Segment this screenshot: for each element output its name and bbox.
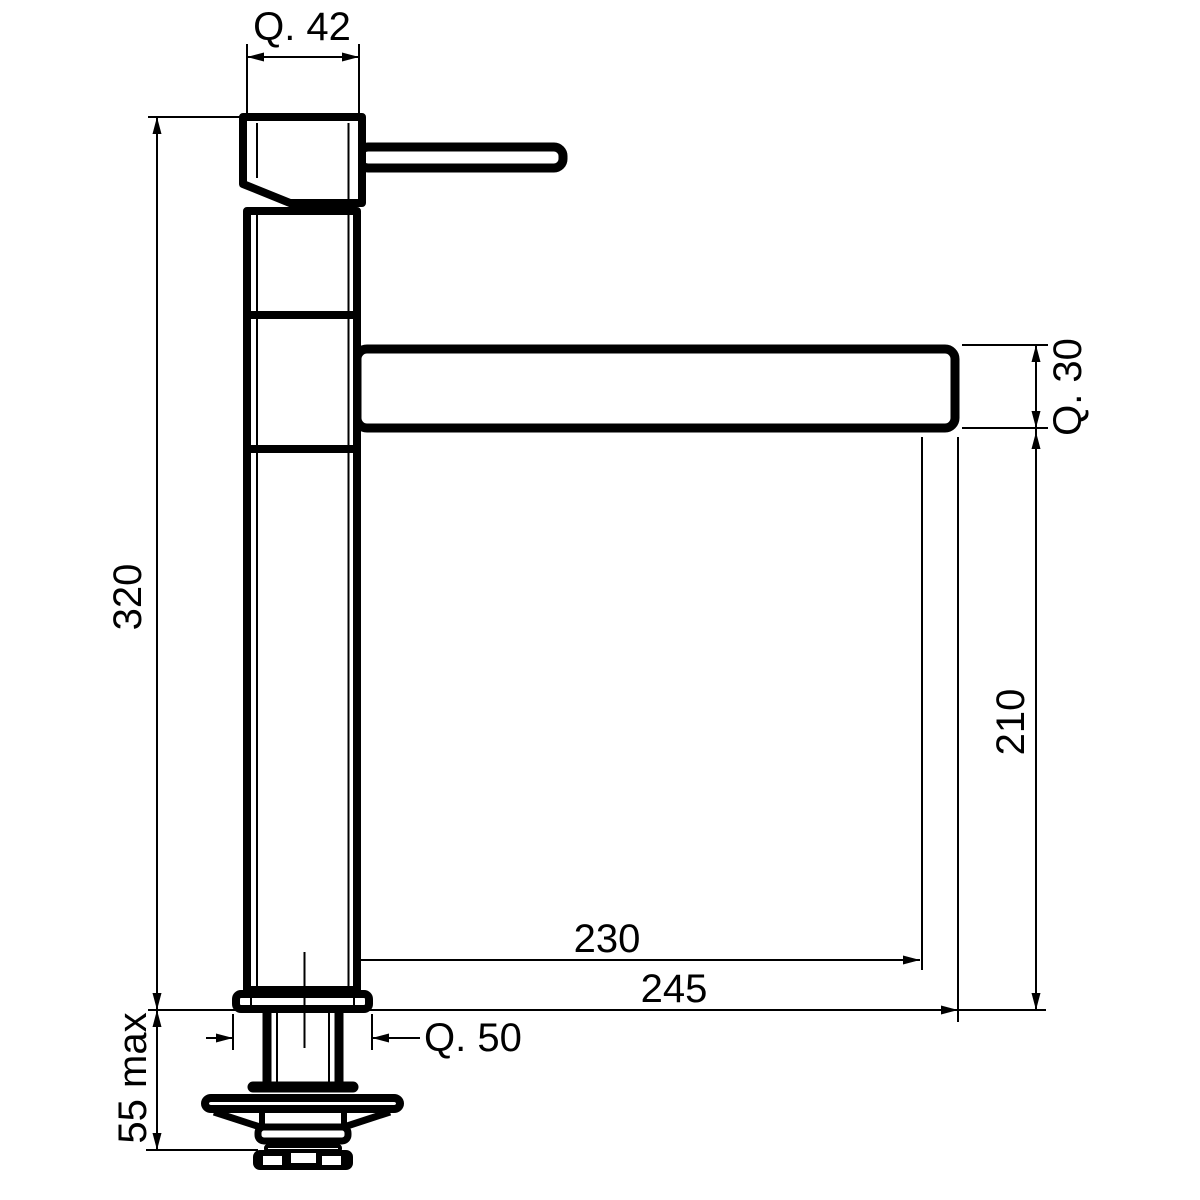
dim-label-head-width: Q. 42 xyxy=(253,5,351,49)
escutcheon-cone-right xyxy=(344,1112,390,1127)
faucet-spout xyxy=(357,349,955,428)
arrowhead-up xyxy=(1032,432,1041,449)
mounting-washer xyxy=(249,1083,357,1091)
arrowhead-right xyxy=(216,1034,233,1043)
dim-label-reach-230: 230 xyxy=(574,917,641,961)
arrowhead-right xyxy=(342,53,359,62)
arrowhead-up xyxy=(1032,345,1041,362)
arrowhead-left xyxy=(372,1034,389,1043)
arrowhead-down xyxy=(1032,993,1041,1010)
dim-label-spout-height: 210 xyxy=(989,689,1033,756)
faucet-lever-handle xyxy=(359,147,563,168)
nut-slot-right xyxy=(322,1156,341,1165)
dim-label-reach-245: 245 xyxy=(641,967,708,1011)
faucet-technical-drawing: Q. 42 320 55 max Q. 30 210 230 245 Q. 50 xyxy=(0,0,1200,1200)
technical-drawing-canvas: Q. 42 320 55 max Q. 30 210 230 245 Q. 50 xyxy=(0,0,1200,1200)
dim-q50 xyxy=(206,1014,420,1050)
dim-q30 xyxy=(962,345,1048,428)
escutcheon-cone-left xyxy=(214,1112,260,1127)
dim-230 xyxy=(305,437,922,970)
dim-label-base-width: Q. 50 xyxy=(424,1016,522,1060)
escutcheon-plate xyxy=(205,1098,400,1109)
arrowhead-right xyxy=(941,1006,958,1015)
dim-q42 xyxy=(247,44,359,116)
dim-label-total-height: 320 xyxy=(106,564,150,631)
dim-label-max-deck-thickness: 55 max xyxy=(111,1012,155,1143)
dim-320 xyxy=(148,117,243,1010)
dim-label-spout-square: Q. 30 xyxy=(1046,338,1090,436)
dim-55max xyxy=(146,1010,258,1150)
arrowhead-up xyxy=(153,117,162,134)
arrowhead-right xyxy=(903,956,920,965)
faucet-body-column xyxy=(247,211,357,990)
mounting-nut xyxy=(258,1127,348,1141)
faucet-body xyxy=(243,117,955,990)
nut-slot-left xyxy=(263,1156,282,1165)
base-flange xyxy=(236,994,369,1009)
arrowhead-down xyxy=(153,993,162,1010)
nut-slot-center xyxy=(291,1153,316,1163)
faucet-head xyxy=(243,117,362,203)
arrowhead-left xyxy=(247,53,264,62)
arrowhead-down xyxy=(1032,411,1041,428)
